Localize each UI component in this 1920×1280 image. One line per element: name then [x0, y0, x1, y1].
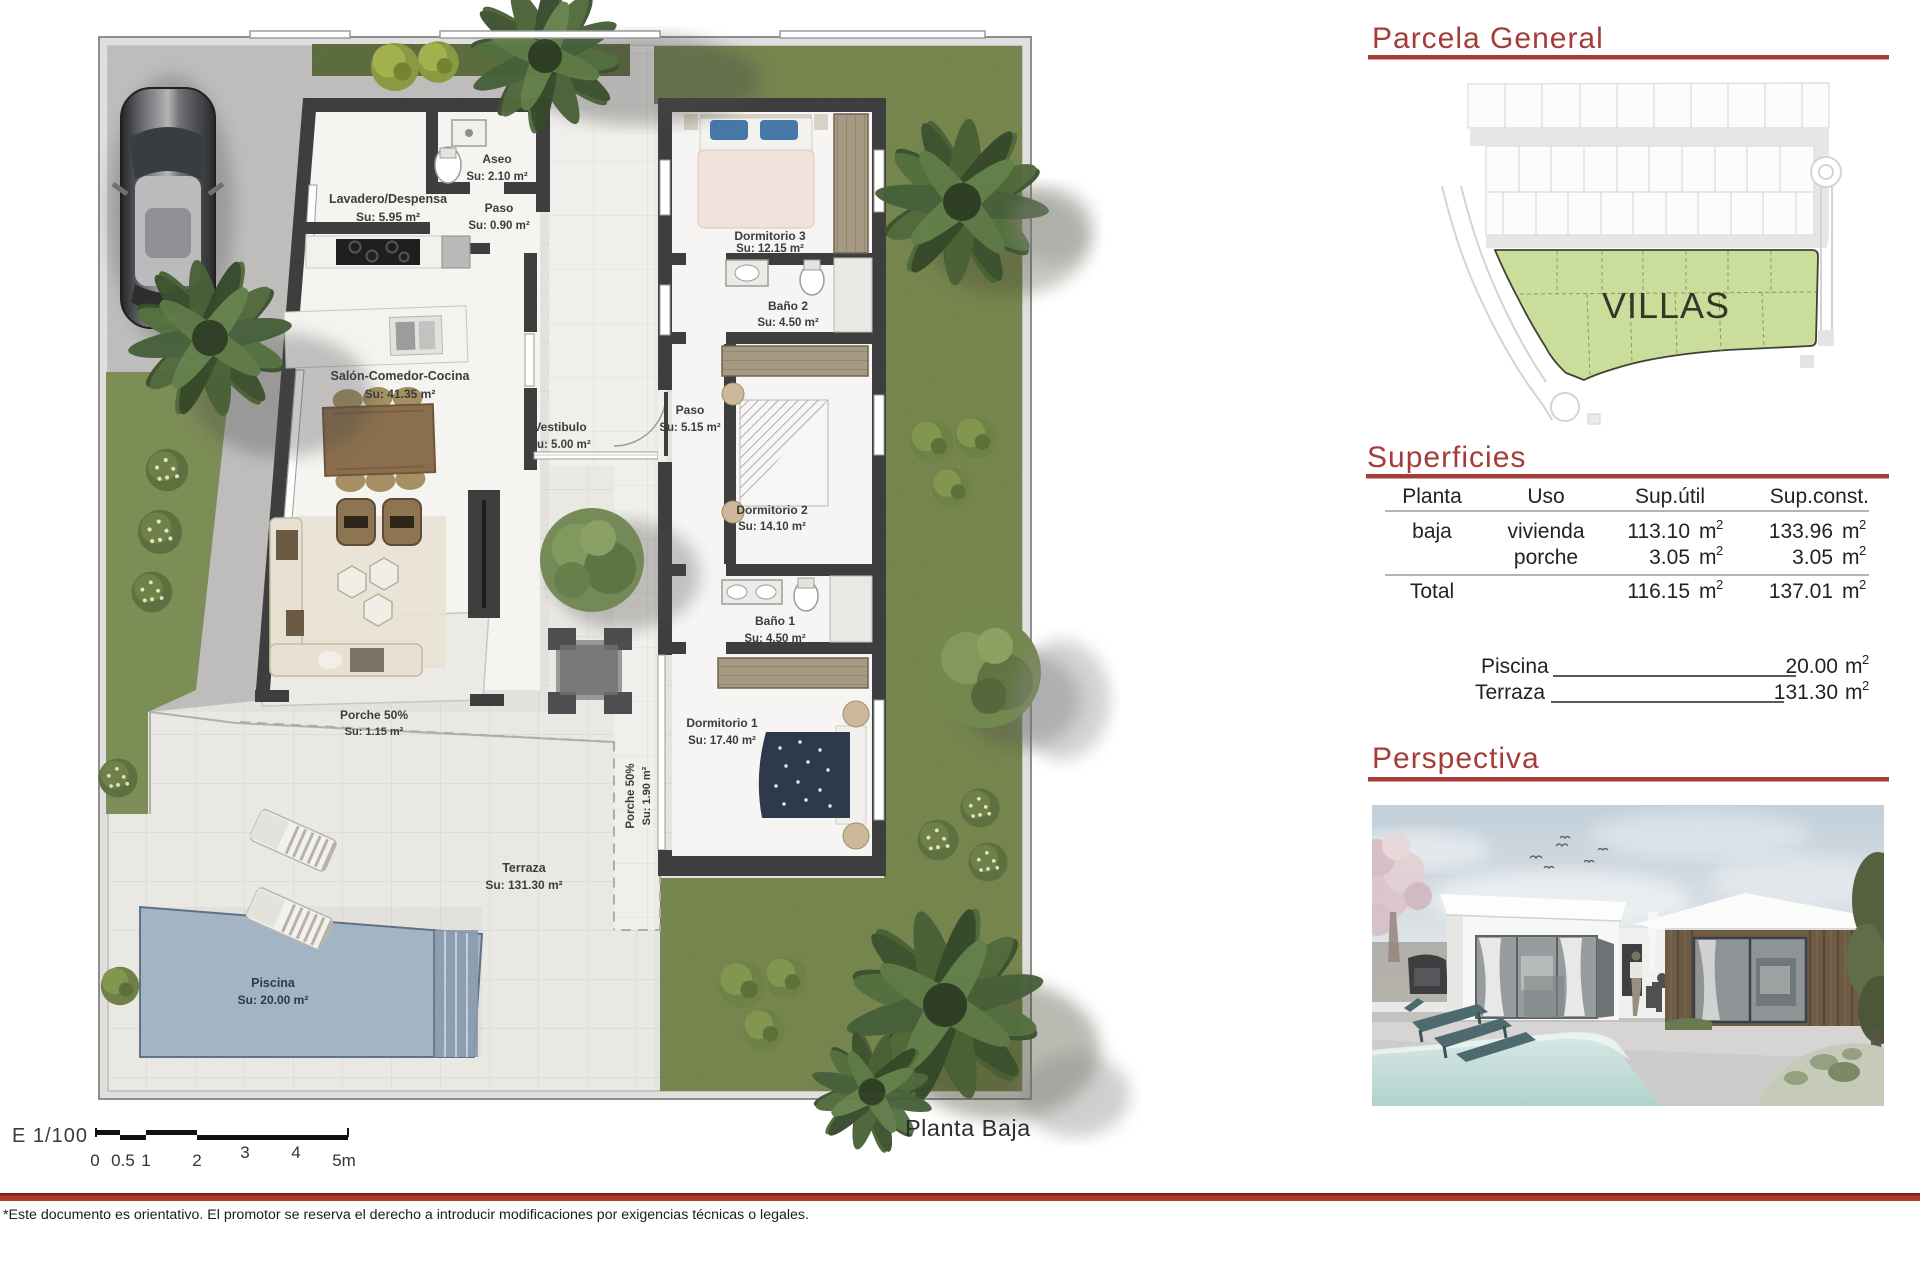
svg-text:3.05: 3.05	[1792, 546, 1833, 569]
svg-text:Porche 50%: Porche 50%	[340, 708, 408, 722]
svg-text:Planta Baja: Planta Baja	[905, 1115, 1031, 1141]
svg-text:2: 2	[1859, 577, 1866, 592]
svg-text:116.15: 116.15	[1627, 580, 1690, 603]
svg-text:E 1/100: E 1/100	[12, 1125, 88, 1147]
svg-text:Dormitorio 1: Dormitorio 1	[686, 716, 758, 730]
svg-text:Paso: Paso	[676, 403, 705, 417]
svg-text:m: m	[1699, 546, 1717, 569]
svg-text:Su: 2.10 m²: Su: 2.10 m²	[466, 171, 528, 183]
svg-text:Su: 5.00 m²: Su: 5.00 m²	[529, 439, 591, 451]
svg-text:137.01: 137.01	[1769, 580, 1833, 603]
svg-text:2: 2	[1716, 577, 1723, 592]
svg-text:m: m	[1842, 520, 1860, 543]
svg-text:Dormitorio 3: Dormitorio 3	[734, 229, 806, 243]
svg-text:4: 4	[291, 1143, 300, 1162]
svg-text:Porche 50%: Porche 50%	[625, 763, 637, 828]
svg-text:2: 2	[1716, 517, 1723, 532]
svg-text:0.5: 0.5	[111, 1151, 135, 1170]
svg-text:Lavadero/Despensa: Lavadero/Despensa	[329, 192, 448, 206]
svg-text:Superficies: Superficies	[1367, 441, 1526, 474]
svg-text:20.00: 20.00	[1785, 655, 1838, 678]
svg-text:2: 2	[1862, 678, 1869, 693]
svg-text:Su: 131.30 m²: Su: 131.30 m²	[485, 878, 562, 892]
svg-text:2: 2	[1859, 543, 1866, 558]
svg-text:Baño 2: Baño 2	[768, 299, 808, 313]
svg-text:Su: 1.15 m²: Su: 1.15 m²	[345, 726, 404, 738]
svg-text:2: 2	[1862, 652, 1869, 667]
svg-text:Su: 17.40 m²: Su: 17.40 m²	[688, 735, 756, 747]
svg-text:133.96: 133.96	[1769, 520, 1833, 543]
svg-text:m: m	[1699, 580, 1717, 603]
svg-text:baja: baja	[1412, 520, 1452, 543]
svg-text:131.30: 131.30	[1774, 681, 1838, 704]
svg-text:Su: 14.10 m²: Su: 14.10 m²	[738, 521, 806, 533]
svg-text:m: m	[1842, 580, 1860, 603]
svg-text:VILLAS: VILLAS	[1602, 285, 1730, 326]
svg-text:Aseo: Aseo	[482, 152, 511, 166]
svg-text:porche: porche	[1514, 546, 1578, 569]
svg-text:Uso: Uso	[1527, 485, 1564, 508]
svg-text:m: m	[1699, 520, 1717, 543]
svg-text:113.10: 113.10	[1627, 520, 1690, 543]
svg-text:Perspectiva: Perspectiva	[1372, 742, 1540, 775]
svg-text:*Este documento es orientativo: *Este documento es orientativo. El promo…	[3, 1207, 809, 1223]
svg-text:Sup.útil: Sup.útil	[1635, 485, 1705, 508]
svg-text:2: 2	[192, 1151, 201, 1170]
svg-text:2: 2	[1716, 543, 1723, 558]
svg-text:Piscina: Piscina	[251, 976, 296, 990]
svg-text:Su: 5.95 m²: Su: 5.95 m²	[356, 210, 420, 224]
svg-text:Su: 20.00 m²: Su: 20.00 m²	[238, 993, 309, 1007]
svg-text:m: m	[1845, 681, 1863, 704]
svg-text:Parcela General: Parcela General	[1372, 22, 1604, 55]
svg-text:Paso: Paso	[485, 201, 514, 215]
svg-text:2: 2	[1859, 517, 1866, 532]
svg-text:Su: 41.35 m²: Su: 41.35 m²	[365, 387, 436, 401]
svg-text:3: 3	[240, 1143, 249, 1162]
svg-text:3.05: 3.05	[1649, 546, 1690, 569]
svg-text:Piscina: Piscina	[1481, 655, 1549, 678]
svg-text:vivienda: vivienda	[1507, 520, 1584, 543]
svg-text:Total: Total	[1410, 580, 1454, 603]
svg-text:Baño 1: Baño 1	[755, 614, 795, 628]
svg-text:Terraza: Terraza	[502, 861, 547, 875]
svg-text:Planta: Planta	[1402, 485, 1462, 508]
svg-text:Su: 12.15 m²: Su: 12.15 m²	[736, 243, 804, 255]
svg-text:Su: 1.90 m²: Su: 1.90 m²	[641, 766, 653, 825]
svg-text:Su: 4.50 m²: Su: 4.50 m²	[744, 633, 806, 645]
svg-text:Sup.const.: Sup.const.	[1770, 485, 1869, 508]
svg-text:Dormitorio 2: Dormitorio 2	[736, 503, 808, 517]
svg-text:m: m	[1845, 655, 1863, 678]
svg-text:1: 1	[141, 1151, 150, 1170]
svg-text:Su: 5.15 m²: Su: 5.15 m²	[659, 422, 721, 434]
svg-text:5m: 5m	[332, 1151, 356, 1170]
svg-text:0: 0	[90, 1151, 99, 1170]
svg-text:Terraza: Terraza	[1475, 681, 1545, 704]
svg-text:Su: 0.90 m²: Su: 0.90 m²	[468, 220, 530, 232]
svg-text:Su: 4.50 m²: Su: 4.50 m²	[757, 317, 819, 329]
svg-text:Vestibulo: Vestibulo	[533, 420, 586, 434]
svg-text:m: m	[1842, 546, 1860, 569]
